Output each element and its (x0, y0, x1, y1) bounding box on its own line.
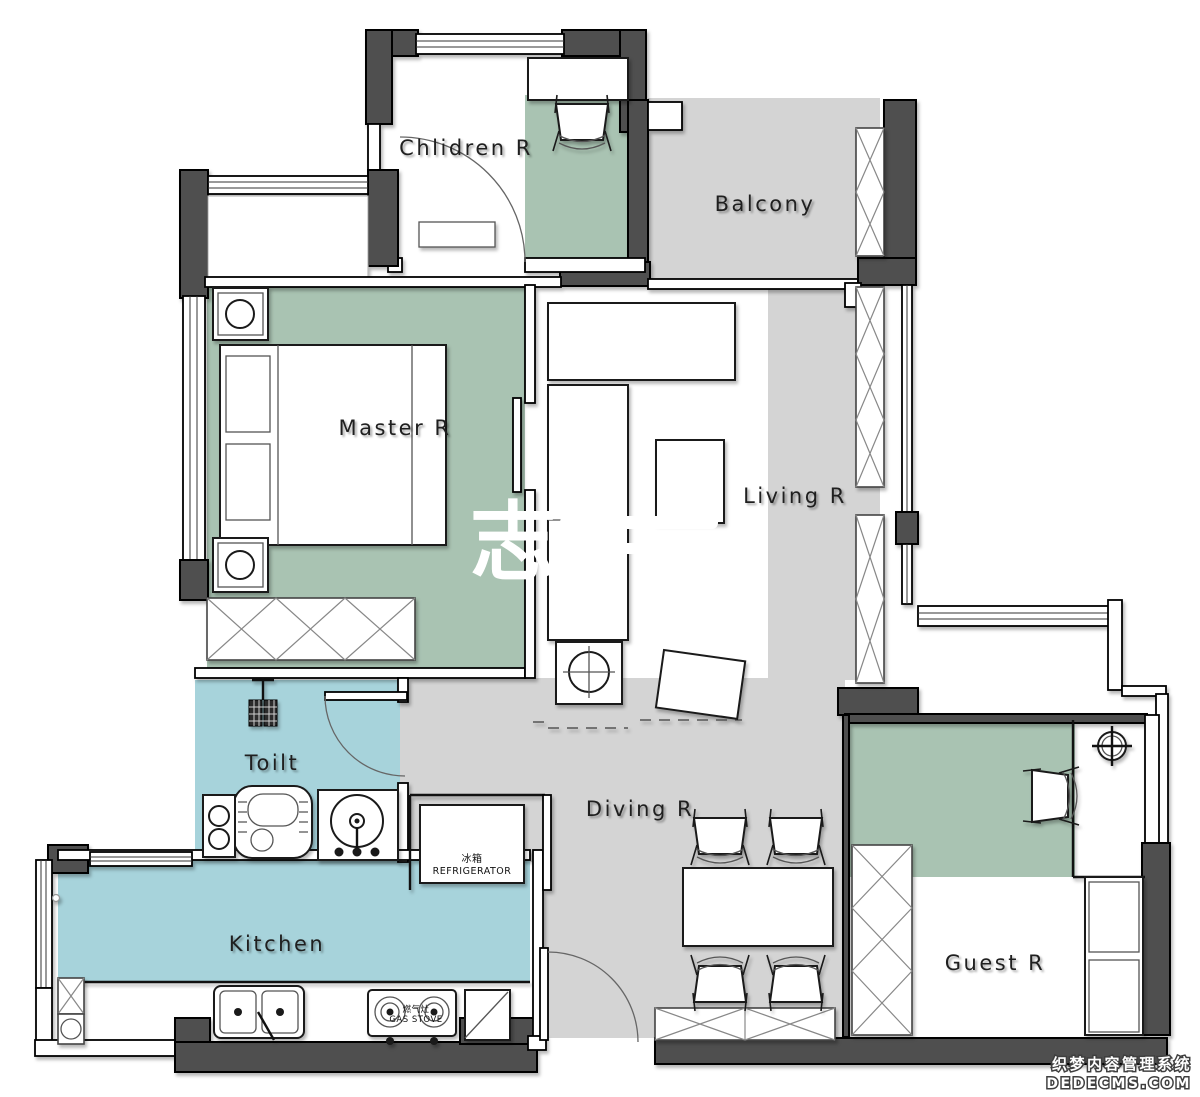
wall-segment (628, 100, 648, 268)
refrigerator-label-en: REFRIGERATOR (433, 866, 512, 877)
floor-pouf (656, 650, 745, 719)
guest-bed (1085, 877, 1143, 1035)
balcony-label: Balcony (715, 192, 816, 216)
living-room-label: Living R (743, 484, 847, 508)
guest-room-label: Guest R (945, 951, 1045, 975)
door-leaf (513, 398, 521, 492)
window (183, 296, 205, 564)
floor-plan-canvas: Chlidren R Balcony Master R Living R Toi… (0, 0, 1200, 1097)
balcony-divider (648, 279, 858, 289)
children-room-label: Chlidren R (399, 136, 533, 160)
wall-segment (845, 714, 1147, 723)
kitchen-corner-unit (58, 978, 84, 1044)
master-nightstand-top (213, 288, 268, 340)
wall-segment (36, 988, 52, 1044)
shoe-cabinet (655, 1008, 835, 1040)
toilet-label: Toilt (244, 751, 300, 775)
living-side-cabinet (856, 287, 884, 683)
wall-segment (1142, 843, 1170, 1035)
wall-segment (1108, 600, 1122, 690)
kitchen-floor-dot (53, 895, 60, 902)
dining-room-label: Diving R (586, 797, 694, 821)
master-room-label: Master R (339, 416, 452, 440)
wall-segment (205, 277, 561, 287)
corner-cabinet (465, 990, 510, 1040)
wall-segment (838, 688, 918, 715)
window (90, 852, 192, 866)
wall-segment (175, 1042, 537, 1072)
wall-segment (843, 715, 849, 1037)
children-desk (528, 58, 628, 100)
toilet-door-leaf (325, 692, 407, 700)
kitchen-label: Kitchen (229, 932, 325, 956)
window (902, 285, 912, 512)
master-wardrobe (207, 598, 415, 660)
window (918, 606, 1110, 626)
wall-segment (648, 102, 682, 130)
center-watermark: 志 (470, 493, 556, 593)
children-door-mat (419, 222, 495, 247)
side-table (556, 642, 622, 704)
washing-machine (318, 790, 398, 860)
guest-basin (1092, 726, 1132, 766)
window (416, 34, 564, 54)
window (902, 544, 912, 604)
balcony-cabinet (856, 128, 884, 256)
wall-segment (884, 100, 916, 262)
wall-segment (858, 258, 916, 285)
entry-door-leaf (540, 948, 548, 1040)
wall-segment (543, 795, 551, 890)
toilet-cabinet (203, 795, 235, 857)
watermark-streak (560, 516, 718, 529)
master-nightstand-bottom (213, 538, 268, 592)
wall-segment (180, 560, 208, 600)
dining-table (683, 868, 833, 946)
window (36, 860, 52, 988)
master-bed (220, 345, 446, 545)
wall-segment (180, 170, 208, 298)
refrigerator-label-cn: 冰箱 (462, 852, 483, 865)
bay-window-recess (208, 196, 368, 284)
brand-watermark-cn: 织梦内容管理系统 (1052, 1055, 1192, 1073)
gas-stove-label-cn: 燃气灶 (402, 1004, 429, 1015)
wall-segment (1145, 715, 1159, 845)
coffee-table (656, 440, 724, 523)
kitchen-sink (214, 986, 304, 1040)
wall-segment (368, 170, 398, 266)
wall-segment (175, 1018, 210, 1044)
squat-toilet (234, 786, 312, 858)
gas-stove-label-en: GAS STOVE (389, 1015, 442, 1025)
wall-segment (525, 258, 645, 272)
guest-wardrobe (852, 845, 912, 1035)
wall-segment (195, 668, 525, 678)
tv-cabinet (548, 303, 735, 380)
wall-segment (35, 1040, 177, 1056)
wall-segment (366, 30, 392, 124)
wall-segment (896, 512, 918, 544)
wall-segment (525, 285, 535, 403)
watermark-streak (588, 543, 706, 554)
window (208, 176, 368, 194)
floor-plan: Chlidren R Balcony Master R Living R Toi… (0, 0, 1200, 1097)
brand-watermark-en: DEDECMS.COM (1046, 1076, 1192, 1092)
